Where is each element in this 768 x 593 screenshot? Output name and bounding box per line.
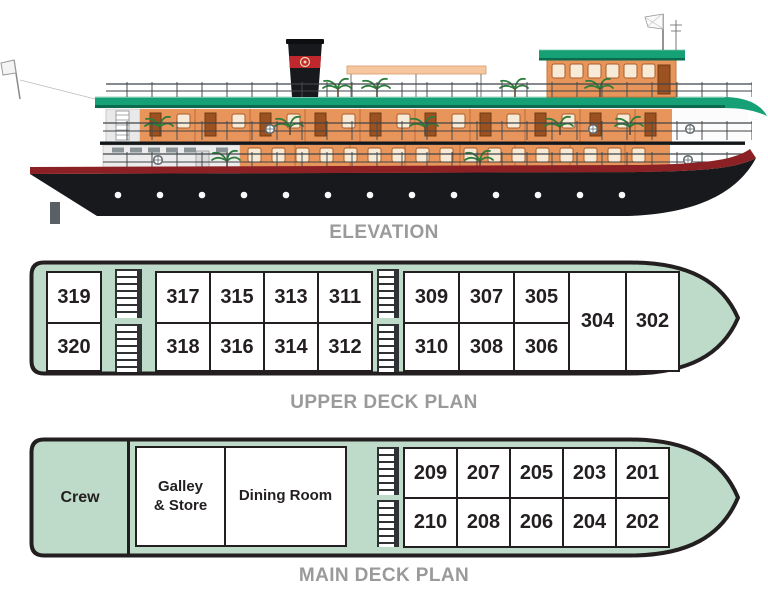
cabin-box: 315	[209, 271, 265, 324]
crew-area: Crew	[33, 442, 127, 553]
lifebuoy-icon	[684, 156, 693, 165]
cabin-box: 316	[209, 322, 265, 372]
main-deck-label: MAIN DECK PLAN	[0, 565, 768, 587]
cabin-box: 307	[458, 271, 515, 324]
cabin-box: 302	[625, 271, 680, 372]
cabin-box: 204	[562, 497, 617, 548]
bow-flag-staff	[1, 60, 103, 101]
cabin-box: 320	[46, 322, 102, 372]
lifebuoy-icon	[266, 125, 275, 134]
stairs-icon	[377, 324, 399, 372]
main-deck-plan: Crew Galley & Store Dining Room 209 207 …	[0, 435, 768, 560]
cabin-box: 318	[155, 322, 211, 372]
cabin-box: 311	[317, 271, 373, 324]
deck-plan-page: ELEVATION 319 320 317 315 313 311 318 31…	[0, 0, 768, 593]
stairs-icon	[377, 269, 399, 318]
lifebuoy-icon	[154, 156, 163, 165]
crew-divider-line	[127, 441, 130, 554]
rudder	[50, 202, 60, 224]
cabin-box: 308	[458, 322, 515, 372]
cabin-box: 319	[46, 271, 102, 324]
galley-store-room: Galley & Store	[137, 448, 226, 545]
cabin-box: 313	[263, 271, 319, 324]
stairs-icon	[115, 269, 142, 318]
stairs-icon	[115, 324, 142, 372]
cabin-box: 207	[456, 447, 511, 499]
cabin-box: 317	[155, 271, 211, 324]
stairs-icon	[377, 500, 399, 547]
cabin-box: 209	[403, 447, 458, 499]
cabin-box: 304	[568, 271, 627, 372]
cabin-box: 210	[403, 497, 458, 548]
stern-flag-mast	[645, 14, 682, 50]
cabin-box: 208	[456, 497, 511, 548]
upper-deck-plan: 319 320 317 315 313 311 318 316 314 312 …	[0, 258, 768, 378]
stairs-icon	[377, 447, 399, 495]
ship-elevation	[0, 2, 768, 232]
cabin-box: 306	[513, 322, 570, 372]
awning	[347, 66, 486, 74]
lifebuoy-icon	[589, 125, 598, 134]
dining-room: Dining Room	[226, 448, 345, 545]
cabin-box: 205	[509, 447, 564, 499]
cabin-box: 201	[615, 447, 670, 499]
cabin-box: 202	[615, 497, 670, 548]
cabin-box: 314	[263, 322, 319, 372]
cabin-box: 309	[403, 271, 460, 324]
cabin-box: 203	[562, 447, 617, 499]
elevation-label: ELEVATION	[0, 222, 768, 244]
cabin-box: 305	[513, 271, 570, 324]
sun-deck	[106, 14, 752, 97]
deck-edge-line	[100, 142, 745, 145]
cabin-box: 312	[317, 322, 373, 372]
cabin-box: 206	[509, 497, 564, 548]
rooms-box: Galley & Store Dining Room	[135, 446, 347, 547]
lifebuoy-icon	[686, 125, 695, 134]
upper-deck-label: UPPER DECK PLAN	[0, 392, 768, 414]
cabin-box: 310	[403, 322, 460, 372]
